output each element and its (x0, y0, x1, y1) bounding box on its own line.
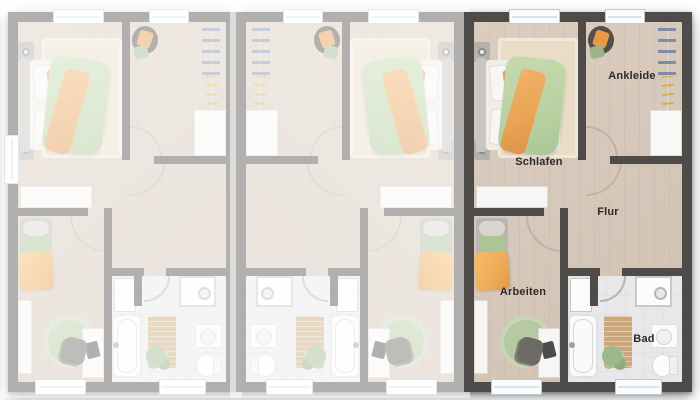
wall-segment (8, 12, 18, 392)
toilet (196, 352, 222, 377)
shelf (440, 300, 454, 374)
wall-segment (590, 276, 598, 306)
sink (250, 324, 277, 348)
wall-segment (18, 208, 88, 216)
wall-segment (578, 22, 586, 160)
sink (195, 324, 222, 348)
window-bottom-bath (266, 379, 313, 395)
wardrobe-cabinet (246, 110, 278, 156)
room-label-flur: Flur (597, 206, 619, 218)
room-label-bad: Bad (633, 333, 654, 345)
wall-segment (560, 208, 568, 382)
room-label-ankleide: Ankleide (608, 70, 655, 82)
window-top-bedroom (53, 9, 104, 24)
wall-segment (360, 208, 368, 382)
window-bottom-study (35, 379, 86, 395)
shelf (18, 300, 32, 374)
washing-machine (336, 278, 358, 312)
clothes-hangers (254, 76, 266, 112)
wall-segment (464, 12, 474, 392)
double-bed-headboard (442, 58, 452, 152)
wall-segment (610, 156, 682, 164)
draped-cloth (323, 45, 339, 60)
single-bed-blanket (474, 251, 510, 291)
clothes-hangers (662, 76, 674, 112)
sideboard (20, 186, 92, 208)
clothes-hangers (202, 28, 220, 80)
sideboard (476, 186, 548, 208)
room-label-schlafen: Schlafen (515, 156, 562, 168)
bathtub (330, 314, 360, 378)
wardrobe-cabinet (194, 110, 226, 156)
unit-right[interactable]: Schlafen Ankleide Flur Arbeiten Bad (464, 12, 692, 392)
wall-segment (122, 22, 130, 160)
wall-segment (226, 12, 236, 392)
window-bottom-bath (159, 379, 206, 395)
shelf (474, 300, 488, 374)
bathtub (568, 314, 598, 378)
toilet (652, 352, 678, 377)
wall-segment (622, 268, 682, 276)
wall-segment (682, 12, 692, 392)
wall-segment (246, 156, 318, 164)
wall-segment (330, 276, 338, 306)
window-top-dressing (605, 9, 645, 24)
double-bed-headboard (476, 58, 486, 152)
single-bed-blanket (418, 251, 454, 291)
washing-machine (570, 278, 592, 312)
window-bottom-study (386, 379, 437, 395)
floorplan-canvas: Schlafen Ankleide Flur Arbeiten Bad (0, 0, 700, 400)
wall-segment (384, 208, 454, 216)
wall-segment (112, 268, 144, 276)
wall-segment (342, 22, 350, 160)
single-bed-blanket (18, 251, 54, 291)
shower (635, 276, 672, 307)
wall-segment (474, 208, 544, 216)
sink (651, 324, 678, 348)
wall-segment (236, 12, 464, 22)
unit-left-plan: Schlafen Ankleide Flur Arbeiten Bad (8, 12, 236, 392)
unit-right-plan: Schlafen Ankleide Flur Arbeiten Bad (464, 12, 692, 392)
room-label-arbeiten: Arbeiten (500, 286, 546, 298)
window-top-dressing (149, 9, 189, 24)
toilet (250, 352, 276, 377)
wall-segment (454, 12, 464, 392)
shower (179, 276, 216, 307)
wall-segment (166, 268, 226, 276)
unit-middle[interactable]: Schlafen Ankleide Flur Arbeiten Bad (236, 12, 464, 392)
wall-segment (236, 12, 246, 392)
wall-segment (154, 156, 226, 164)
wall-segment (104, 208, 112, 382)
plant (602, 346, 622, 366)
clothes-hangers (658, 28, 676, 80)
window-top-dressing (283, 9, 323, 24)
washing-machine (114, 278, 136, 312)
window-bottom-bath (615, 379, 662, 395)
shower (256, 276, 293, 307)
window-top-bedroom (509, 9, 560, 24)
wall-segment (134, 276, 142, 306)
bathtub (112, 314, 142, 378)
wardrobe-cabinet (650, 110, 682, 156)
wall-segment (246, 268, 306, 276)
plant (146, 346, 166, 366)
plant (306, 346, 326, 366)
wall-segment (464, 12, 692, 22)
wall-segment (328, 268, 360, 276)
double-bed-headboard (20, 58, 30, 152)
clothes-hangers (206, 76, 218, 112)
unit-left[interactable]: Schlafen Ankleide Flur Arbeiten Bad (8, 12, 236, 392)
clothes-hangers (252, 28, 270, 80)
side-window (4, 135, 19, 184)
window-top-bedroom (368, 9, 419, 24)
wall-segment (8, 12, 236, 22)
wall-segment (568, 268, 600, 276)
unit-middle-plan: Schlafen Ankleide Flur Arbeiten Bad (236, 12, 464, 392)
window-bottom-study (491, 379, 542, 395)
sideboard (380, 186, 452, 208)
